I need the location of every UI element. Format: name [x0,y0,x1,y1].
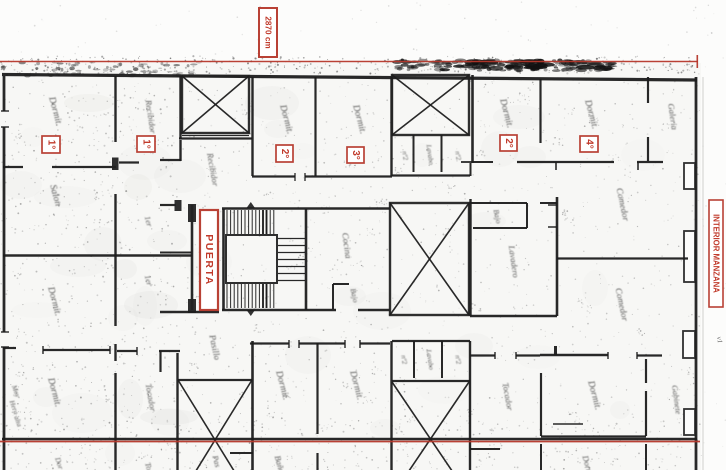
svg-text:INTERIOR MANZANA: INTERIOR MANZANA [712,214,721,293]
svg-text:PUERTA: PUERTA [203,234,215,285]
svg-text:nº2: nº2 [453,354,463,365]
svg-text:2870 cm: 2870 cm [264,16,273,48]
svg-text:v1: v1 [715,336,724,344]
svg-text:To: To [143,461,154,470]
svg-text:nº2: nº2 [400,150,410,161]
svg-text:2°: 2° [279,149,290,159]
svg-text:4°: 4° [584,139,595,149]
svg-text:nº2: nº2 [399,354,409,365]
svg-text:1°: 1° [141,139,152,149]
svg-text:1°: 1° [46,140,57,150]
svg-text:nº2: nº2 [453,150,463,161]
svg-text:3°: 3° [350,150,361,160]
svg-text:2°: 2° [503,138,514,148]
